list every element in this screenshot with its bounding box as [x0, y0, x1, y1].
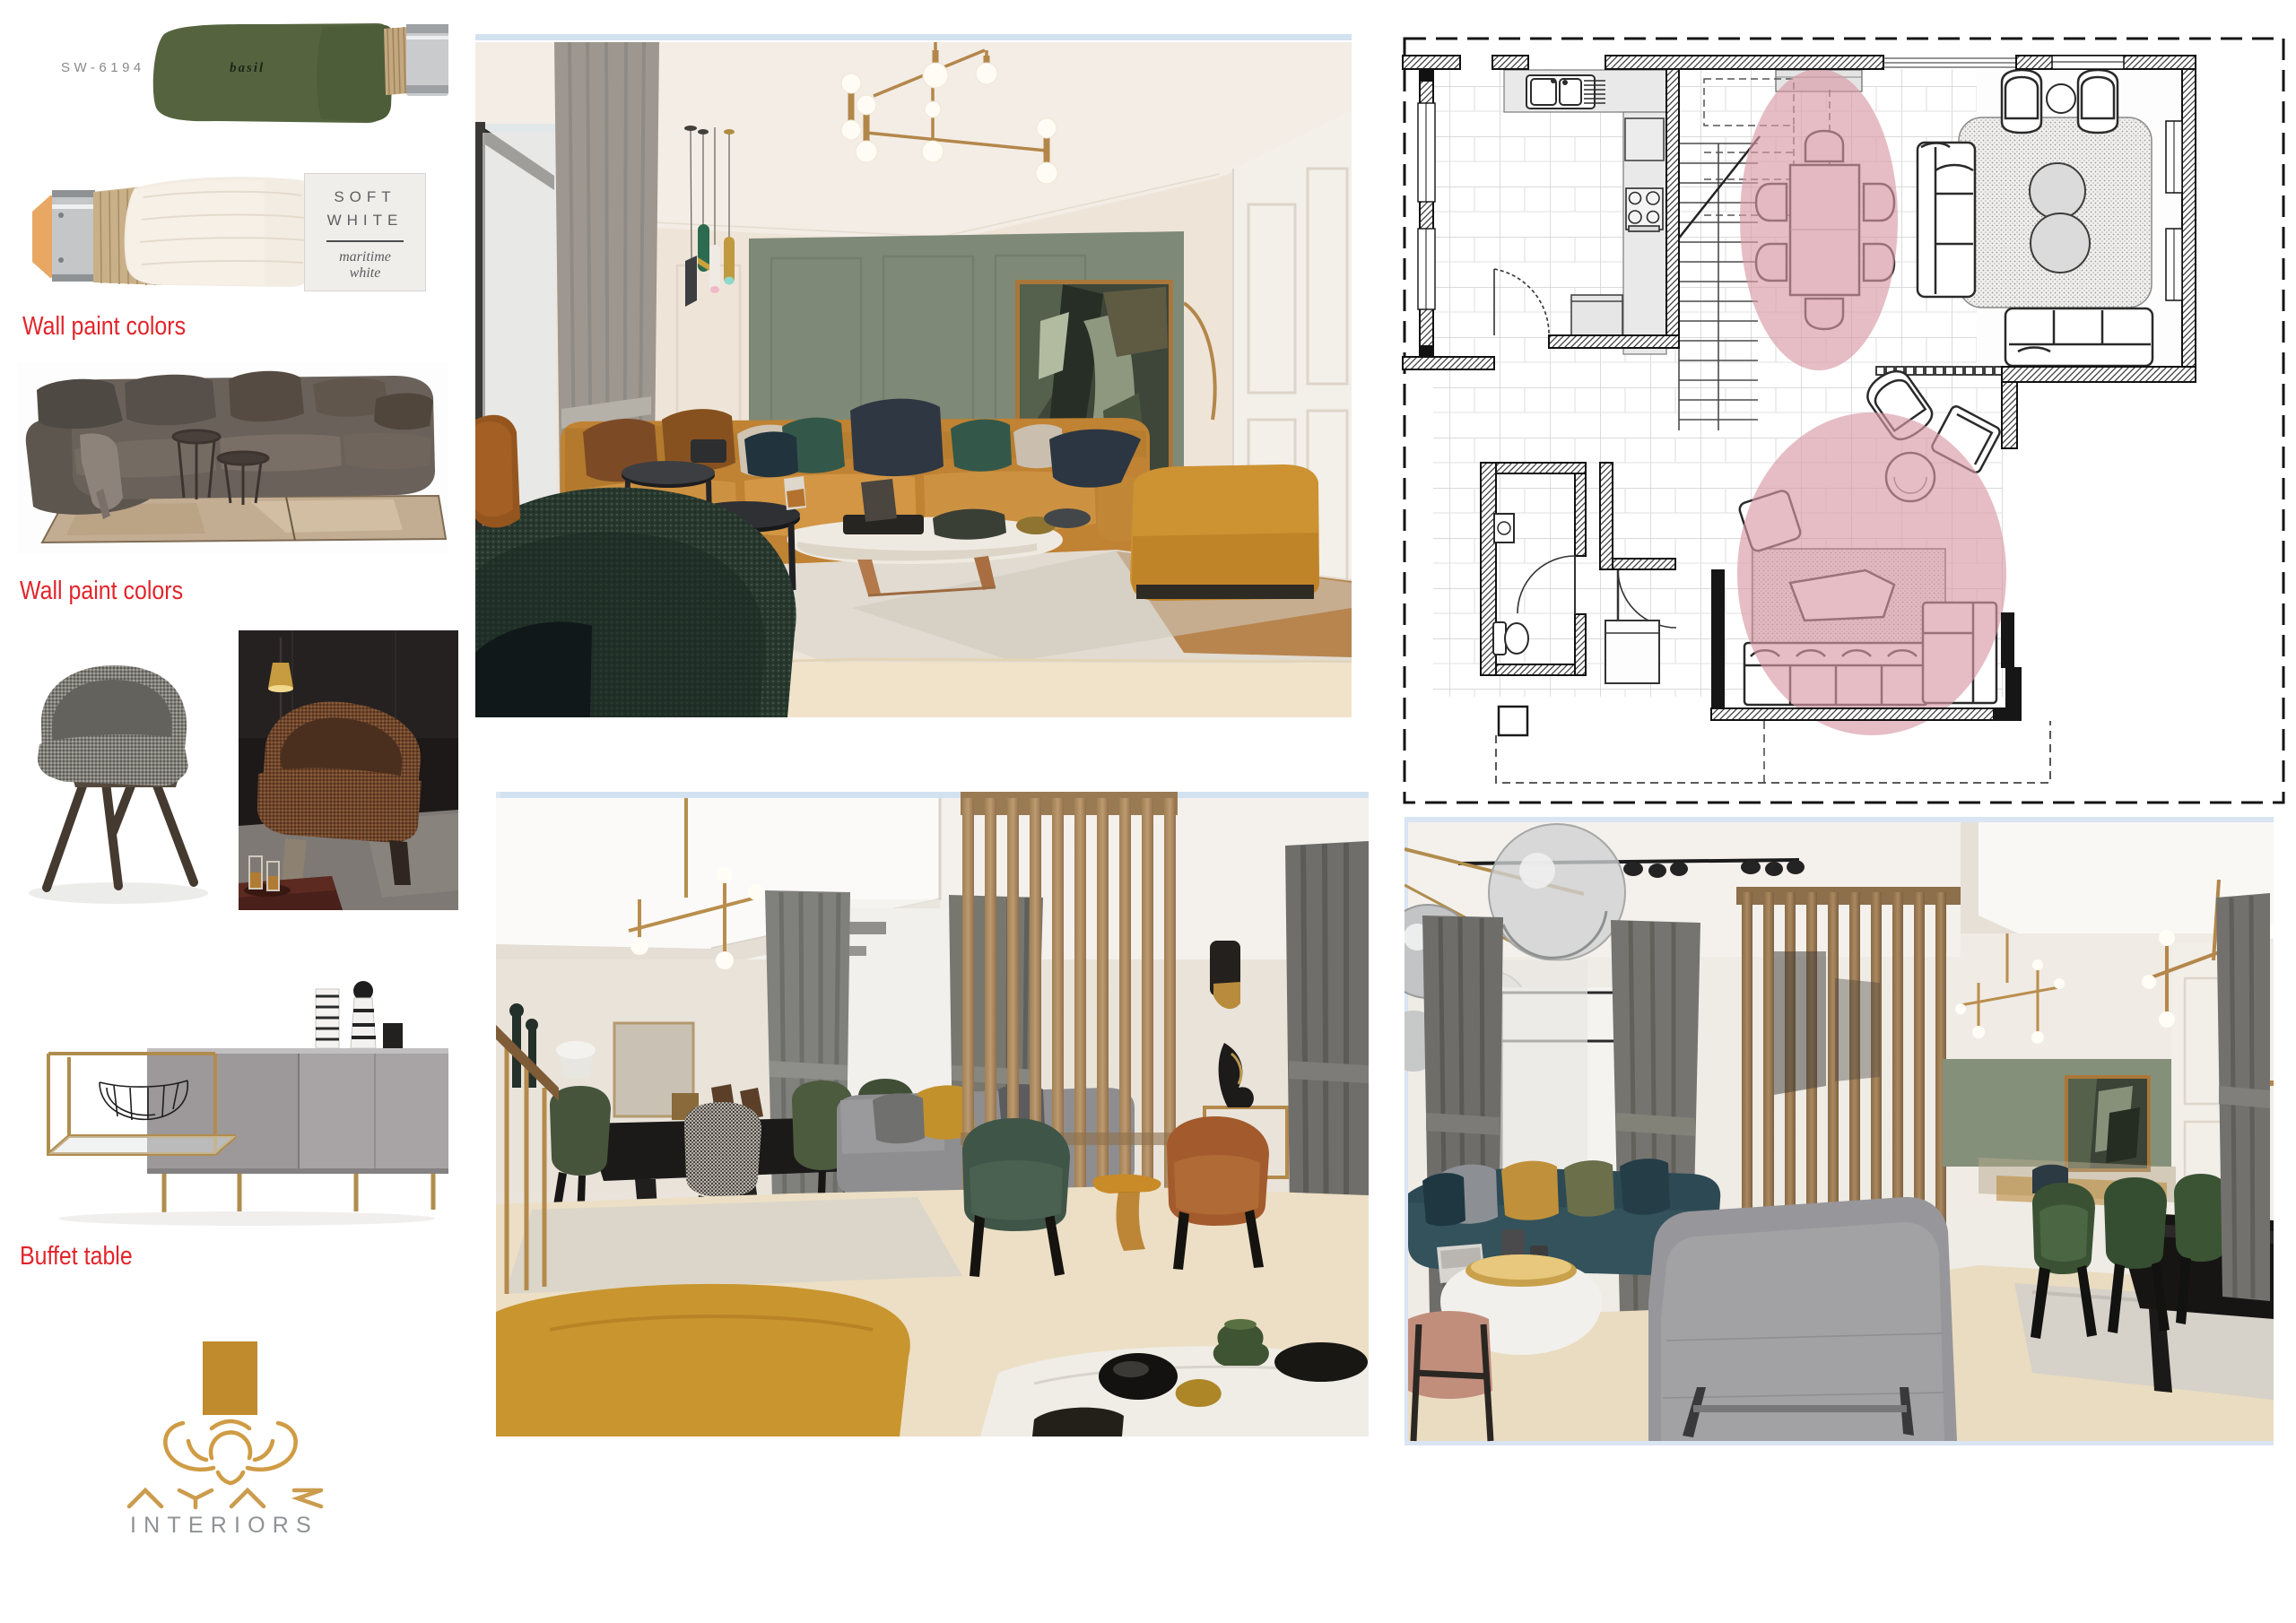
svg-text:basil: basil — [230, 61, 265, 75]
svg-text:SW-6194: SW-6194 — [61, 60, 145, 75]
svg-text:INTERIORS: INTERIORS — [130, 1513, 318, 1538]
